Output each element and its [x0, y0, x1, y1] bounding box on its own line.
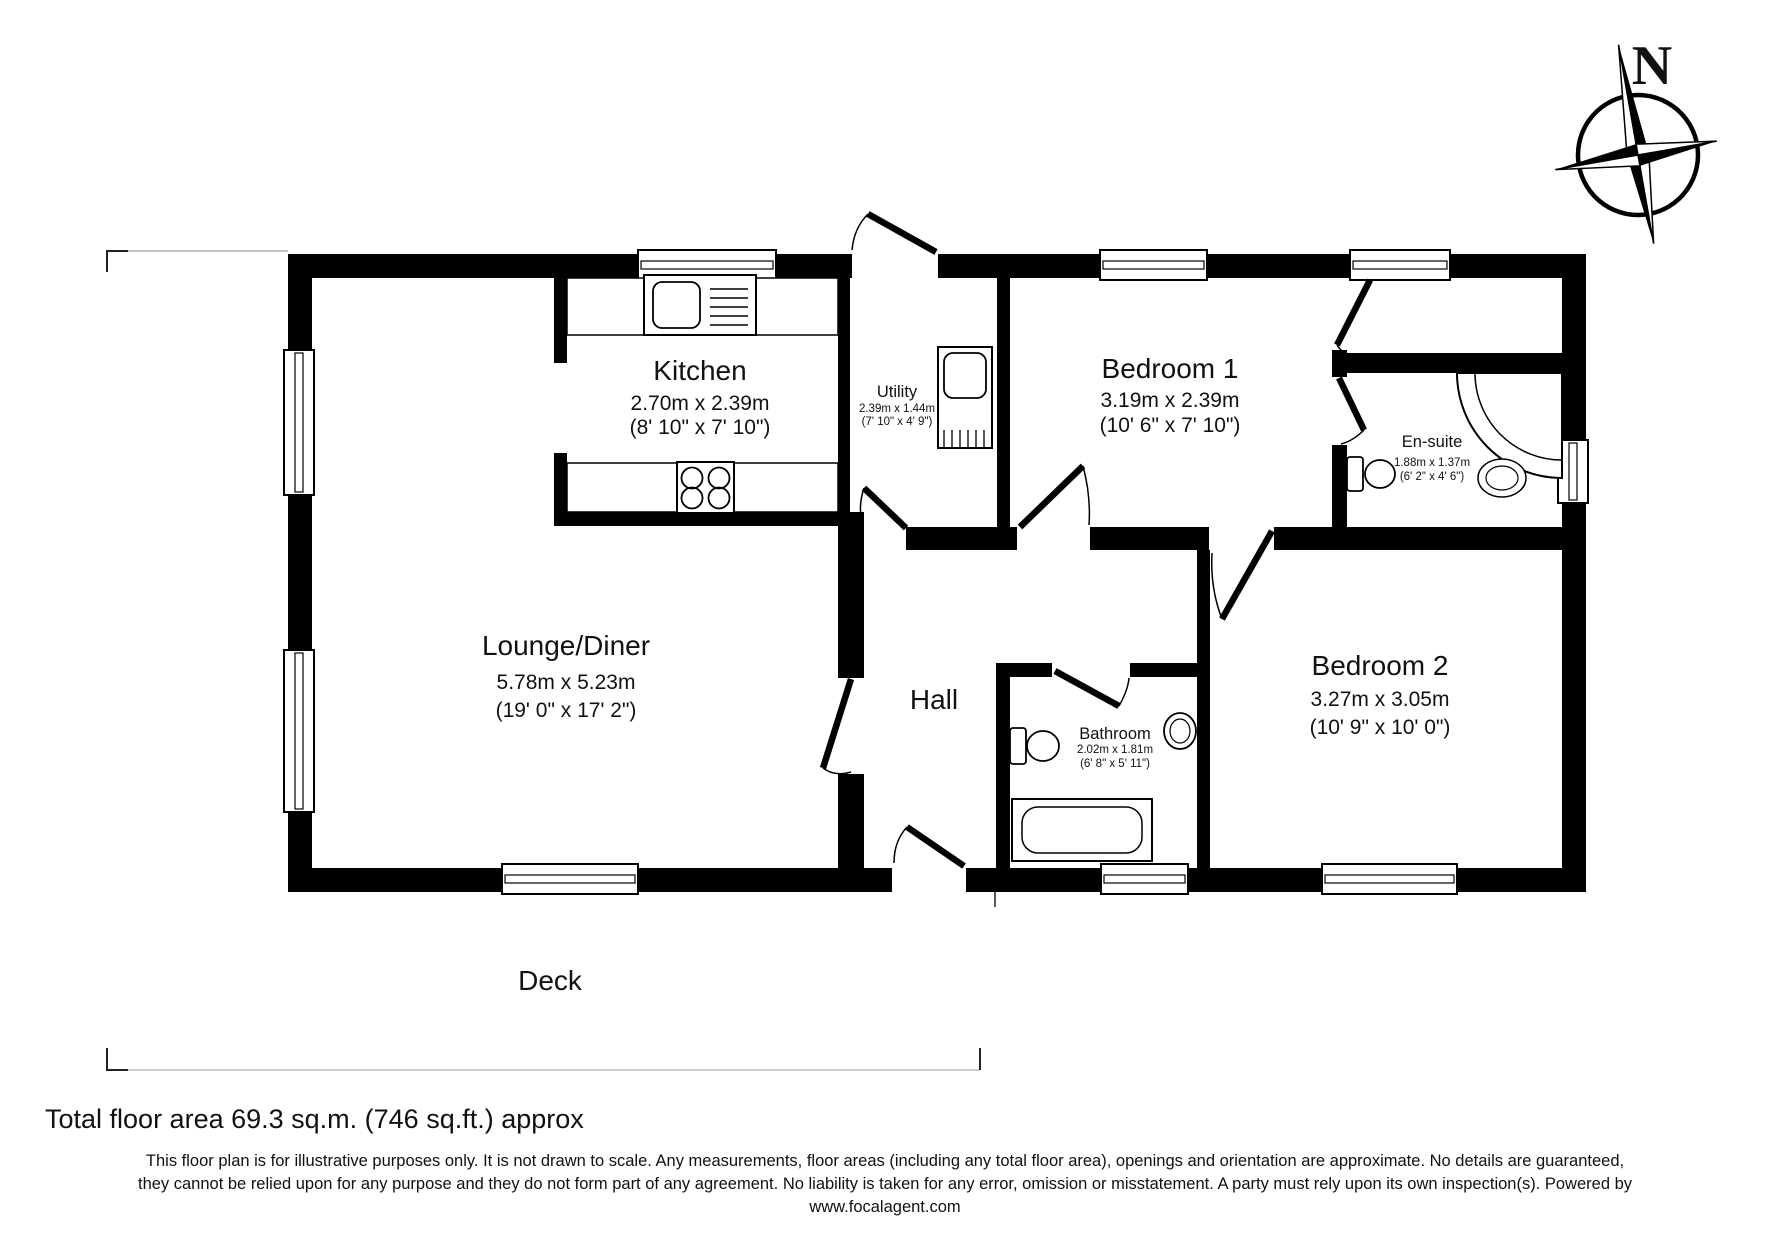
bedroom1-metric: 3.19m x 2.39m [1101, 389, 1240, 412]
ensuite-toilet-cistern-icon [1347, 457, 1363, 491]
bedroom1-window-icon [1100, 250, 1207, 280]
ensuite-name: En-suite [1402, 433, 1463, 451]
utility-door-icon [860, 488, 906, 528]
closet-door-icon [1337, 280, 1370, 355]
lounge-left-window1-icon [284, 350, 314, 495]
kitchen-name: Kitchen [653, 355, 746, 386]
windows [284, 250, 1588, 894]
utility-imperial: (7' 10" x 4' 9") [862, 416, 933, 428]
front-door-icon [852, 214, 936, 252]
disclaimer-line-1: This floor plan is for illustrative purp… [146, 1152, 1624, 1170]
bathroom-door-icon [1055, 671, 1129, 706]
ensuite-metric: 1.88m x 1.37m [1394, 457, 1470, 469]
bedroom2-metric: 3.27m x 3.05m [1311, 688, 1450, 711]
lounge-name: Lounge/Diner [482, 630, 650, 661]
bedroom2-door-icon [1212, 531, 1272, 619]
lounge-metric: 5.78m x 5.23m [497, 671, 636, 694]
lounge-left-window2-icon [284, 650, 314, 812]
boundary-corner-top-left [107, 251, 128, 272]
compass-rose-icon: N [1536, 31, 1733, 258]
bathroom-imperial: (6' 8" x 5' 11") [1080, 758, 1150, 770]
disclaimer-line-2: they cannot be relied upon for any purpo… [138, 1175, 1633, 1193]
utility-name: Utility [877, 383, 918, 401]
top-right-window-icon [1350, 250, 1450, 280]
lounge-bottom-window-icon [502, 864, 638, 894]
bathroom-bottom-window-icon [1101, 864, 1188, 894]
front-door-opening [852, 253, 938, 279]
ensuite-basin-icon [1478, 459, 1526, 497]
bathroom-toilet-cistern-icon [1010, 728, 1026, 764]
compass-north-label: N [1632, 35, 1672, 97]
utility-fixtures [938, 347, 992, 448]
room-labels: Lounge/Diner 5.78m x 5.23m (19' 0" x 17'… [482, 353, 1470, 996]
utility-metric: 2.39m x 1.44m [859, 403, 935, 415]
kitchen-metric: 2.70m x 2.39m [631, 392, 770, 415]
kitchen-imperial: (8' 10" x 7' 10") [630, 416, 771, 439]
hall-rear-door-opening [892, 867, 966, 893]
footer-text: Total floor area 69.3 sq.m. (746 sq.ft.)… [45, 1104, 1633, 1216]
lounge-imperial: (19' 0" x 17' 2") [496, 699, 637, 722]
bedroom1-name: Bedroom 1 [1102, 353, 1239, 384]
hall-rear-door-icon [894, 827, 964, 866]
boundary-corner-bottom-left [107, 1048, 128, 1070]
bathroom-toilet-bowl-icon [1027, 731, 1059, 761]
ensuite-toilet-bowl-icon [1365, 460, 1395, 488]
lounge-door-icon [823, 679, 851, 774]
bedroom1-door-icon [1020, 466, 1089, 527]
total-floor-area: Total floor area 69.3 sq.m. (746 sq.ft.)… [45, 1104, 584, 1134]
disclaimer-website: www.focalagent.com [808, 1198, 960, 1216]
floor-plan-canvas: N Lounge/Diner 5.78m x 5.23m (19' 0" x 1… [0, 0, 1771, 1240]
bathroom-metric: 2.02m x 1.81m [1077, 744, 1153, 756]
bedroom1-imperial: (10' 6" x 7' 10") [1100, 414, 1241, 437]
bedroom2-name: Bedroom 2 [1312, 650, 1449, 681]
floor-plan-page: N Lounge/Diner 5.78m x 5.23m (19' 0" x 1… [0, 0, 1771, 1240]
ensuite-imperial: (6' 2" x 4' 6") [1400, 471, 1464, 483]
ensuite-door-icon [1339, 378, 1364, 444]
bedroom2-bottom-window-icon [1322, 864, 1457, 894]
deck-label: Deck [518, 965, 583, 996]
bathroom-name: Bathroom [1079, 725, 1151, 743]
bedroom2-imperial: (10' 9" x 10' 0") [1310, 716, 1451, 739]
hall-name: Hall [910, 684, 958, 715]
